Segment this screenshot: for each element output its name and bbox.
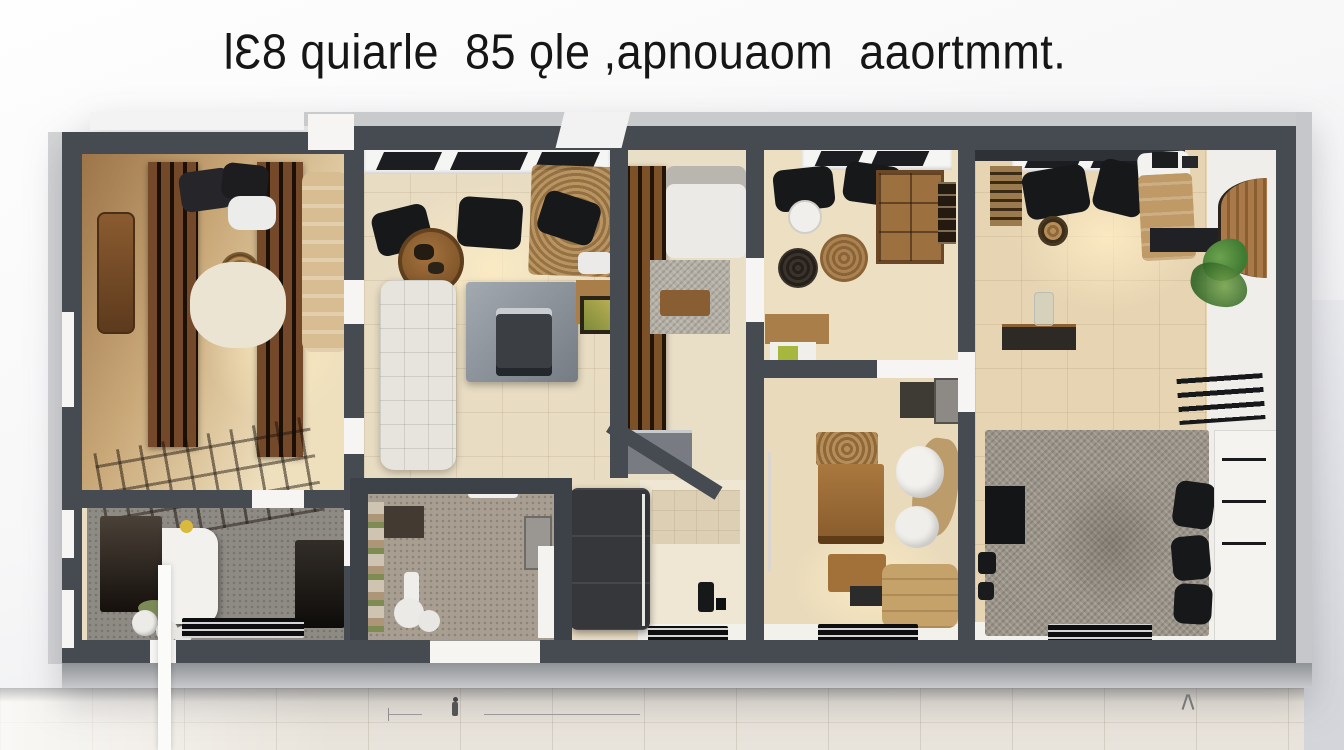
ground-shadow: [0, 688, 1344, 702]
dimension-marker: [388, 700, 648, 730]
quilted-sofa: [380, 280, 456, 470]
canister: [418, 610, 440, 632]
lounge-chair: [1173, 583, 1213, 625]
skylight-panel: [871, 151, 930, 166]
shelf-unit: [876, 170, 944, 264]
door-opening: [746, 258, 764, 322]
door-opening: [344, 418, 364, 454]
bath-mat: [182, 618, 304, 638]
surveyor-figure: [452, 702, 458, 716]
coffee-machine: [496, 308, 552, 376]
rattan-rug-small: [816, 432, 878, 466]
door-opening: [877, 360, 958, 378]
pouf-dark: [778, 248, 818, 288]
sliding-door-bottom: [430, 640, 540, 663]
door-band-white: [538, 546, 554, 638]
glass-partition: [768, 452, 771, 572]
white-pouf: [896, 446, 944, 498]
white-sheet: [190, 262, 286, 348]
tv-panel: [985, 486, 1025, 544]
window-slot: [62, 312, 74, 407]
window-slot: [62, 510, 74, 558]
shower-fixture: [716, 598, 726, 610]
dining-chair: [456, 196, 523, 250]
dimension-tick: [388, 714, 422, 715]
wall-bathroom-left-top: [82, 490, 364, 508]
floor-plan-scene: lƐ8 quiarle 85 ǫle ,apnouaom aaortmmt.: [0, 0, 1344, 750]
study-counter: [765, 314, 829, 344]
bedside-slat-cabinet: [990, 166, 1022, 226]
outer-band-left: [48, 132, 62, 664]
wall-hall-middle: [746, 148, 764, 640]
gadget: [1182, 156, 1198, 168]
tan-bedding: [302, 172, 348, 352]
shower-tiles: [652, 490, 740, 544]
outer-wall-top-left: [62, 132, 345, 154]
rug-shading: [1052, 472, 1172, 612]
roof-notch-white: [90, 112, 304, 130]
lounge-chair: [1170, 534, 1212, 581]
glass-door: [642, 494, 645, 626]
ladder-shelf-dark: [938, 182, 956, 244]
charcoal-sofa: [570, 488, 650, 630]
wall-bathroom-middle-top: [350, 478, 572, 494]
ladder-rack: [1177, 373, 1266, 425]
door-opening: [958, 352, 975, 412]
counter-dark: [384, 506, 424, 538]
white-pouf: [895, 506, 939, 548]
window-notch: [308, 114, 354, 150]
daybed: [666, 166, 746, 258]
hall-table: [660, 290, 710, 316]
table-items: [414, 244, 434, 260]
skylight-panel: [376, 152, 442, 170]
shelf-strip: [368, 502, 384, 632]
outer-band-top: [280, 112, 1312, 126]
outer-band-bottom: [62, 663, 1312, 688]
table-items: [428, 262, 444, 274]
speaker: [978, 552, 996, 574]
wardrobe-panel: [97, 212, 135, 334]
entry-opening: [556, 112, 631, 148]
glass-vase: [1034, 292, 1054, 326]
bed-pillow-white: [228, 196, 276, 230]
tan-chaise: [882, 564, 958, 628]
dimension-tick: [388, 708, 389, 721]
door-light-stripe: [158, 565, 171, 750]
outer-wall-right: [1276, 126, 1296, 663]
surveyor-head: [453, 697, 458, 702]
outer-band-right: [1296, 112, 1312, 663]
door-opening: [252, 490, 304, 508]
pouf-rattan: [820, 234, 868, 282]
laptop: [1152, 152, 1178, 168]
bath-cabinet-right: [295, 540, 345, 628]
basket: [1038, 216, 1068, 246]
wall-bathroom-middle-left: [350, 478, 368, 640]
wood-table: [818, 464, 884, 544]
bath-cabinet-dark: [100, 516, 162, 612]
flower-accent: [180, 520, 193, 533]
wall-bathroom-middle-right: [554, 478, 572, 640]
window-slot: [62, 590, 74, 648]
dark-block: [850, 586, 886, 606]
kitchen-sink: [578, 252, 612, 274]
outer-wall-bottom: [62, 640, 1296, 663]
speaker: [978, 582, 994, 600]
shower-fixture: [698, 582, 714, 612]
lounge-chair: [1171, 479, 1217, 530]
door-opening: [344, 280, 364, 324]
drawer-handles: [1222, 438, 1266, 558]
caption-title: lƐ8 quiarle 85 ǫle ,apnouaom aaortmmt.: [0, 23, 1290, 80]
white-stool: [788, 200, 822, 234]
dimension-line: [484, 714, 640, 715]
skylight-panel: [450, 152, 528, 170]
outer-wall-top: [345, 126, 1296, 150]
canister: [132, 610, 158, 636]
floating-shelf: [1002, 324, 1076, 350]
floor-plan: [62, 112, 1312, 688]
